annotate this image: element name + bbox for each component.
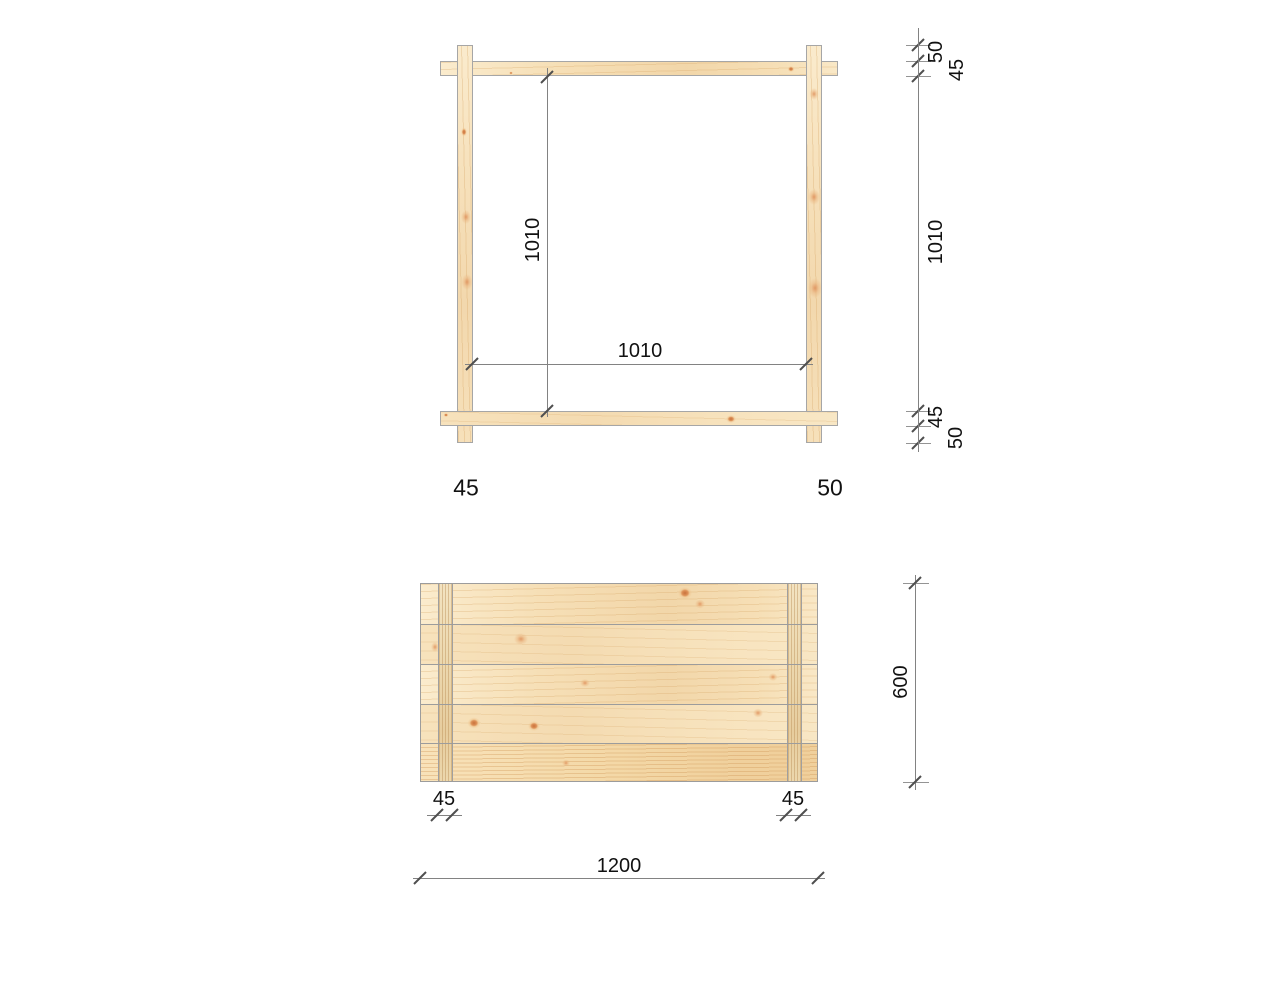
plank-separator — [421, 664, 818, 665]
dim-value-batten-right: 45 — [782, 789, 804, 809]
wood-knot — [695, 600, 705, 609]
dim-value-inner-width: 1010 — [618, 341, 663, 361]
dim-line-inner-width — [465, 364, 813, 365]
panel-plank — [421, 664, 818, 704]
panel-batten-right — [787, 584, 802, 782]
wood-knot — [461, 128, 467, 137]
wood-knot — [462, 274, 473, 290]
panel — [420, 583, 818, 782]
wood-knot — [726, 415, 736, 423]
wood-knot — [468, 718, 481, 729]
wood-knot — [808, 189, 820, 205]
wood-knot — [562, 760, 570, 767]
wood-knot — [528, 721, 540, 731]
panel-view: 45 45 1200 600 — [0, 0, 1280, 997]
plank-separator — [421, 743, 818, 744]
dim-line-batten-right — [776, 815, 811, 816]
wood-knot — [678, 587, 692, 599]
wood-knot — [769, 673, 778, 681]
wood-knot — [431, 642, 439, 652]
dim-value-overall-height: 600 — [891, 665, 911, 698]
panel-batten-left — [438, 584, 453, 782]
drawing-canvas: 1010 1010 50 45 1010 45 50 45 50 — [0, 0, 1280, 997]
wood-knot — [461, 210, 471, 224]
panel-plank — [421, 624, 818, 664]
wood-knot — [444, 413, 449, 417]
dim-value-batten-left: 45 — [433, 789, 455, 809]
wood-knot — [788, 66, 795, 72]
wood-knot — [580, 679, 590, 687]
panel-plank — [421, 743, 818, 782]
panel-plank — [421, 584, 818, 624]
plank-separator — [421, 704, 818, 705]
wood-knot — [808, 278, 822, 298]
dim-line-overall-width — [413, 878, 825, 879]
wood-knot — [753, 709, 763, 718]
frame-right-post — [806, 45, 822, 443]
wood-knot — [509, 72, 513, 75]
dim-line-overall-height — [915, 575, 916, 790]
dim-value-inner-height: 1010 — [523, 218, 543, 263]
frame-left-post — [457, 45, 473, 443]
frame-bottom-rail — [440, 411, 838, 426]
wood-knot — [810, 88, 819, 100]
wood-knot — [514, 633, 528, 645]
frame-top-rail — [440, 61, 838, 76]
plank-separator — [421, 624, 818, 625]
dim-value-overall-width: 1200 — [597, 856, 642, 876]
dim-chain-line — [918, 28, 919, 452]
dim-line-batten-left — [427, 815, 462, 816]
